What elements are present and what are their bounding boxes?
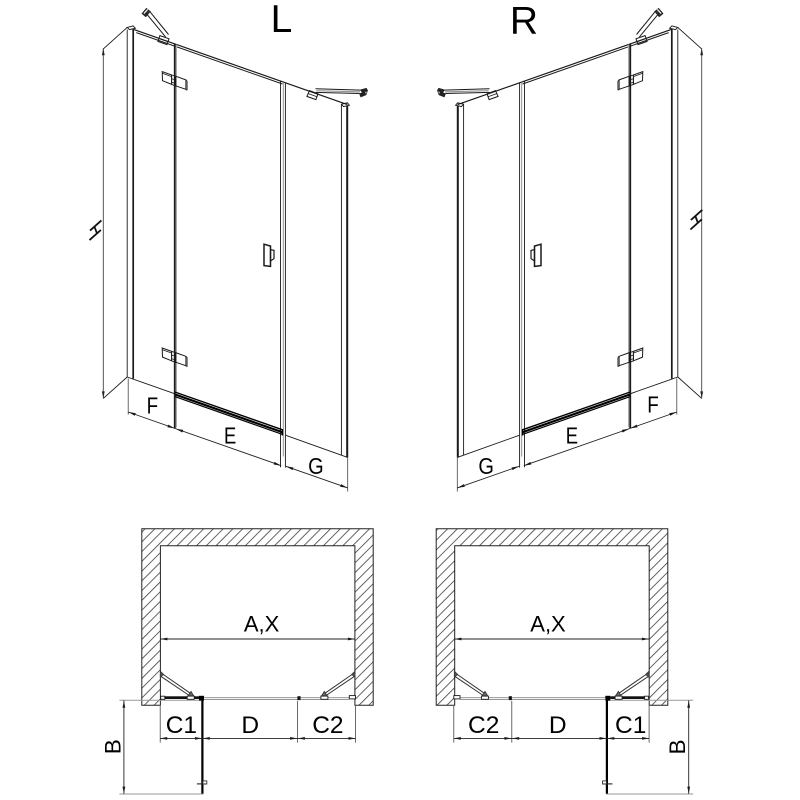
svg-text:C1: C1 [166, 712, 197, 739]
svg-text:A,X: A,X [244, 612, 280, 637]
svg-text:R: R [510, 0, 538, 42]
svg-text:B: B [665, 739, 690, 754]
svg-text:G: G [308, 453, 324, 480]
svg-text:E: E [224, 424, 236, 449]
svg-text:C2: C2 [312, 712, 343, 739]
svg-text:C2: C2 [468, 712, 499, 739]
svg-text:F: F [147, 394, 159, 419]
svg-text:G: G [478, 453, 494, 480]
svg-text:C1: C1 [615, 712, 646, 739]
svg-text:L: L [271, 0, 293, 41]
svg-text:D: D [549, 712, 567, 739]
svg-text:B: B [100, 739, 125, 754]
svg-text:A,X: A,X [530, 612, 566, 637]
svg-text:D: D [241, 712, 259, 739]
svg-text:F: F [647, 393, 659, 418]
svg-text:E: E [566, 424, 578, 449]
